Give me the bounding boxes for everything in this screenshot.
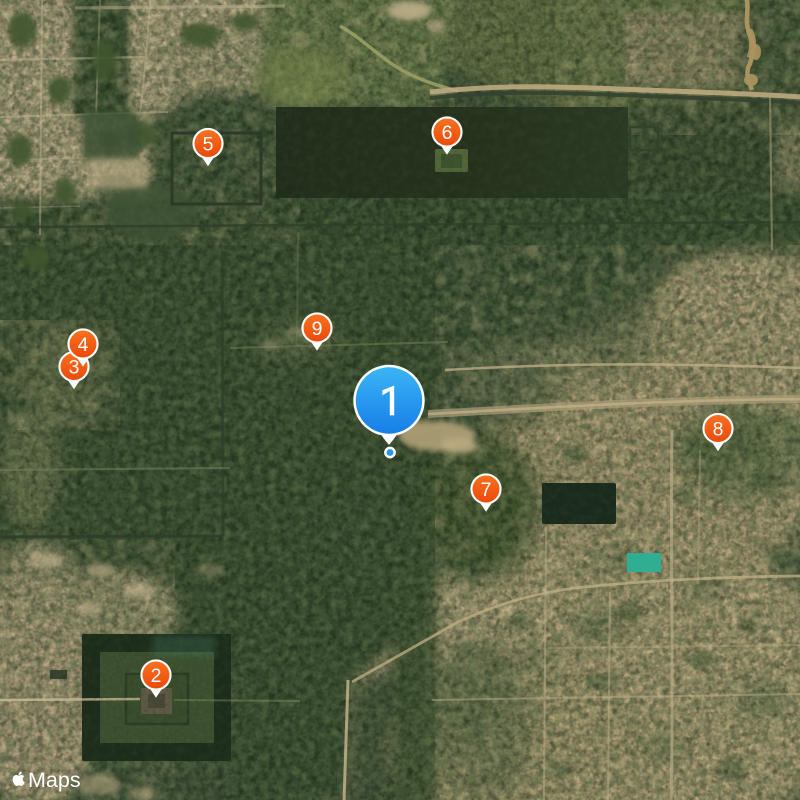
svg-text:7: 7: [481, 479, 492, 501]
svg-text:5: 5: [203, 133, 214, 155]
svg-text:9: 9: [312, 318, 323, 340]
svg-text:6: 6: [442, 122, 453, 144]
svg-text:3: 3: [69, 356, 80, 378]
svg-text:4: 4: [78, 334, 89, 356]
svg-text:8: 8: [713, 418, 724, 440]
svg-text:2: 2: [151, 665, 162, 687]
svg-text:Maps: Maps: [28, 768, 81, 792]
